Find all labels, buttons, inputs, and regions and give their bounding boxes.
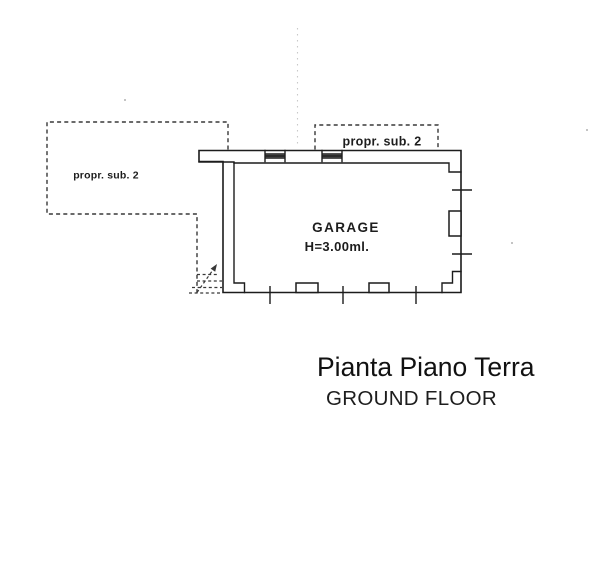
stair-arrow-icon xyxy=(197,264,217,293)
stair-steps-dashed xyxy=(189,275,222,294)
plan-title: Pianta Piano Terra xyxy=(317,352,535,382)
bottom-pillar xyxy=(296,283,318,293)
window-icon xyxy=(322,151,342,162)
bottom-pillar xyxy=(369,283,389,293)
room-label: GARAGE xyxy=(312,220,380,235)
scanned-floor-plan-page: propr. sub. 2 propr. sub. 2 GARAGE H=3.0… xyxy=(0,0,607,585)
right-wall-niche xyxy=(449,211,461,236)
floor-plan-drawing: propr. sub. 2 propr. sub. 2 GARAGE H=3.0… xyxy=(0,0,607,585)
window-icon xyxy=(265,151,285,162)
plan-subtitle: GROUND FLOOR xyxy=(326,387,497,410)
top-property-label: propr. sub. 2 xyxy=(343,135,422,149)
left-property-label: propr. sub. 2 xyxy=(73,170,139,182)
left-property-boundary xyxy=(47,122,228,293)
room-height-label: H=3.00ml. xyxy=(305,239,370,254)
